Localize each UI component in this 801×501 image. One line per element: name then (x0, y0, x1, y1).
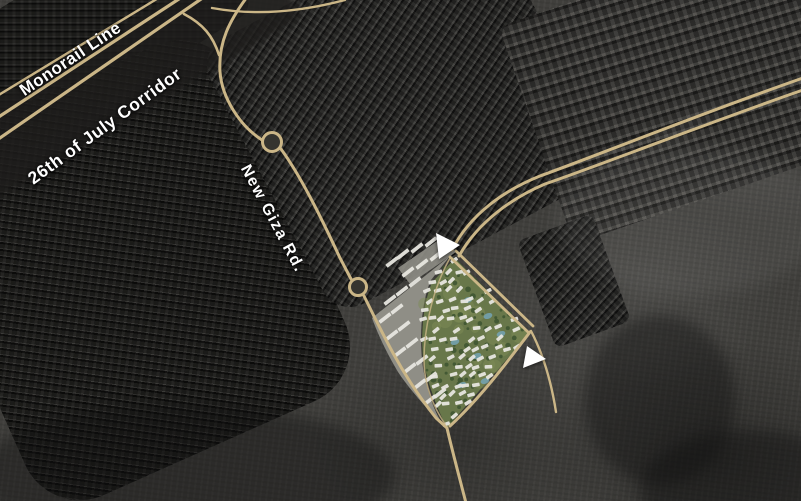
tree (471, 385, 475, 389)
tree (458, 399, 462, 403)
tree (445, 279, 448, 282)
villa-building (467, 336, 475, 344)
road-top-edge-stub (212, 0, 345, 12)
apartment-strip (413, 378, 426, 390)
housing-cluster-topcenter (196, 0, 619, 318)
tree (470, 293, 476, 299)
apartment-strip (415, 354, 428, 366)
villa-building (455, 270, 463, 275)
housing-cluster-left (0, 21, 369, 501)
lawn-patch (495, 342, 509, 356)
tree (502, 315, 505, 318)
apartment-strip (415, 258, 428, 270)
villa-building (452, 327, 460, 334)
tree (477, 371, 481, 375)
tree (442, 266, 445, 269)
lawn-patch (471, 325, 479, 333)
tree (450, 377, 454, 381)
lawn-patch (489, 360, 502, 373)
tree (465, 286, 471, 292)
site-parcel-gray (372, 256, 450, 426)
industrial-cluster-topright (499, 0, 801, 244)
apartment-strip (396, 248, 409, 260)
pond (450, 338, 460, 346)
lawn-patch (473, 357, 482, 366)
tree (458, 377, 463, 382)
lawn-patch (438, 314, 452, 328)
tree (464, 343, 469, 348)
villa-building (454, 383, 462, 389)
apartment-strip (395, 285, 408, 297)
villa-building (488, 354, 496, 360)
tree (452, 314, 456, 318)
pond (463, 296, 473, 304)
tree (453, 362, 456, 365)
apartment-strip (397, 320, 410, 332)
villa-building (484, 326, 492, 333)
tree (450, 411, 455, 416)
villa-building (512, 326, 520, 332)
villa-building (455, 365, 463, 369)
gray-parcel-buildings (378, 236, 446, 406)
apartment-strip (423, 394, 436, 406)
villa-building (448, 389, 456, 397)
villa-building (445, 347, 453, 352)
pond (496, 330, 506, 338)
road-site-inner-boundary (424, 258, 450, 424)
tree (512, 336, 517, 341)
tree (445, 363, 449, 367)
lawn-patch (486, 328, 503, 345)
tree (457, 363, 460, 366)
villa-building (468, 354, 476, 362)
housing-cluster-topleft (0, 0, 255, 151)
villa-building (441, 384, 449, 391)
apartment-strip (378, 312, 391, 324)
tree (495, 343, 499, 347)
corridor-roadbed (0, 0, 301, 200)
tree (471, 308, 476, 313)
villa-building (455, 400, 463, 405)
apartment-strip (390, 303, 403, 315)
lawn-patch (443, 286, 458, 301)
tree (521, 328, 524, 331)
tree (443, 390, 448, 395)
apartment-strip (401, 266, 414, 278)
tree (473, 316, 476, 319)
tree (494, 319, 499, 324)
tree (430, 377, 436, 383)
pond (480, 377, 490, 385)
tree (445, 372, 448, 375)
villa-building (445, 268, 453, 276)
villa-building (431, 347, 439, 352)
villa-building (450, 412, 458, 420)
villa-building (432, 326, 440, 334)
tree (457, 274, 460, 277)
label-monorail-line: Monorail Line (16, 18, 125, 101)
villa-building (425, 298, 433, 305)
villa-building (450, 257, 458, 264)
villa-building (476, 297, 484, 304)
apartment-strip (424, 236, 437, 248)
villa-building (435, 299, 443, 305)
villa-building (447, 316, 455, 321)
tree (464, 377, 468, 381)
lawn-patch (470, 306, 485, 321)
villa-building (449, 372, 457, 377)
villa-building (485, 373, 493, 380)
villa-building (434, 288, 442, 293)
villa-building (431, 383, 439, 389)
apartment-strip (410, 242, 423, 254)
pond (457, 381, 467, 389)
tree (466, 327, 469, 330)
tree (481, 294, 484, 297)
apartment-strip (385, 256, 398, 268)
villa-building (465, 363, 473, 370)
desert-wadi-right (585, 315, 735, 485)
villa-building (442, 401, 450, 405)
tree (428, 340, 432, 344)
villa-building (460, 299, 468, 303)
tree (463, 399, 467, 403)
tree (484, 342, 489, 347)
villa-building (476, 355, 484, 362)
villa-building (466, 296, 474, 302)
road-new-giza (220, 0, 262, 140)
site-parcel-north-gray (398, 237, 456, 284)
villa-building (447, 354, 455, 361)
tree (505, 343, 511, 349)
villa-building (445, 285, 453, 293)
tree (506, 326, 510, 330)
villa-building (450, 336, 458, 341)
villa-building (428, 280, 436, 285)
desert-shadow-bottomright (640, 430, 801, 501)
villa-building (472, 382, 480, 387)
tree (472, 277, 476, 281)
tree (494, 316, 497, 319)
villa-building (474, 306, 482, 313)
villa-building (471, 346, 479, 353)
site-parcel-green (422, 258, 530, 428)
villa-building (510, 316, 518, 322)
road-new-giza-mid (281, 149, 351, 279)
road-ne-dual-2 (459, 90, 801, 256)
villa-building (439, 337, 447, 342)
site-pointer-north-icon (436, 233, 460, 259)
satellite-map: Monorail Line 26th of July Corridor New … (0, 0, 801, 501)
pond (483, 312, 493, 320)
tree (486, 349, 488, 351)
villa-building (468, 370, 476, 378)
site-lawn-highlights (418, 279, 528, 389)
tree (466, 393, 471, 398)
villa-building (428, 355, 436, 363)
tree (444, 287, 447, 290)
villa-building (462, 269, 470, 276)
villa-building (430, 375, 438, 379)
road-site-ne-edge-1 (450, 257, 528, 332)
villa-building (421, 308, 429, 313)
villa-building (464, 399, 472, 406)
tree (483, 326, 489, 332)
tree (452, 258, 456, 262)
villa-building (434, 364, 442, 368)
road-below-tip (447, 428, 466, 501)
site-district (372, 236, 530, 428)
road-26th-july-corridor-sb (0, 0, 204, 140)
tree (466, 357, 469, 360)
lawn-patch (511, 327, 527, 343)
villa-building (484, 288, 492, 295)
tree (458, 312, 464, 318)
roundabout-north (263, 133, 282, 152)
tree (456, 381, 461, 386)
site-pointer-east-icon (523, 346, 546, 368)
villa-building (480, 343, 488, 349)
apartment-strip (403, 362, 416, 374)
lawn-patch (452, 306, 468, 322)
villa-building (442, 421, 450, 427)
villa-building (434, 269, 442, 275)
tree (481, 313, 484, 316)
lawn-patch (450, 279, 460, 289)
villa-building (434, 400, 442, 408)
apartment-strip (433, 387, 446, 399)
villa-building (465, 317, 473, 324)
tree (453, 281, 458, 286)
road-network (0, 0, 801, 501)
villa-building (513, 343, 521, 350)
villa-building (503, 347, 511, 353)
desert-ridge-right (555, 145, 801, 295)
villa-building (488, 298, 496, 305)
villa-building (494, 323, 502, 329)
road-ne-dual-1 (452, 78, 801, 250)
villa-building (496, 334, 504, 342)
apartment-strip (424, 371, 437, 383)
site-trees (426, 258, 524, 424)
apartment-strip (429, 250, 442, 262)
tree (451, 348, 457, 354)
pond (472, 352, 482, 360)
villa-building (463, 346, 471, 353)
villa-building (471, 365, 479, 371)
road-corridor-ramp (184, 14, 219, 55)
tree (437, 295, 441, 299)
villa-building (436, 315, 444, 323)
tree (457, 405, 461, 409)
villa-building (419, 316, 427, 322)
tree (450, 418, 455, 423)
road-past-east-vertex (531, 331, 556, 412)
tree (426, 369, 429, 372)
tree (457, 287, 461, 291)
road-26th-july-corridor-nb (0, 0, 182, 118)
site-ponds (450, 296, 506, 389)
apartment-strip (405, 337, 418, 349)
villa-building (458, 352, 466, 360)
lawn-patch (454, 324, 464, 334)
tree (431, 371, 436, 376)
tree (435, 391, 440, 396)
villa-building (428, 336, 436, 341)
villa-building (423, 287, 431, 293)
lawn-patch (432, 321, 441, 330)
villa-building (473, 326, 481, 330)
villa-building (495, 344, 503, 350)
housing-grid-east-of-site (517, 214, 631, 348)
label-26th-of-july-corridor: 26th of July Corridor (24, 63, 186, 189)
villa-building (420, 336, 428, 342)
villa-building (463, 305, 471, 311)
tree (445, 272, 450, 277)
desert-shadow-bottomleft (0, 405, 395, 501)
tree (440, 399, 443, 402)
villa-building (451, 306, 459, 311)
apartment-strip (408, 276, 421, 288)
apartment-strip (383, 294, 396, 306)
villa-building (428, 315, 436, 320)
vignette-overlay (0, 0, 801, 501)
villa-building (442, 308, 450, 314)
tree (474, 340, 479, 345)
tree (486, 356, 491, 361)
tree (500, 309, 503, 312)
villa-building (458, 390, 466, 397)
road-new-giza-south (364, 296, 447, 428)
lawn-patch (483, 358, 495, 370)
villa-building (461, 383, 469, 388)
map-overlay (0, 0, 801, 501)
tree (459, 349, 464, 354)
villa-building (448, 296, 456, 302)
villa-building (439, 279, 447, 286)
tree (438, 379, 442, 383)
villa-building (478, 372, 486, 378)
tree (499, 355, 503, 359)
apartment-strip (393, 346, 406, 358)
tree (429, 361, 433, 365)
road-site-se-edge (450, 332, 530, 426)
tree (464, 385, 467, 388)
lawn-patch (457, 299, 474, 316)
apartment-strip (385, 329, 398, 341)
villa-building (459, 370, 467, 378)
tree (487, 292, 490, 295)
villa-building (455, 285, 463, 293)
tree (453, 344, 456, 347)
label-new-giza-rd: New Giza Rd. (236, 162, 308, 276)
lawn-patch (472, 372, 489, 389)
tree (471, 375, 475, 379)
lawn-patch (452, 309, 466, 323)
tree (478, 321, 483, 326)
villa-building (447, 277, 455, 285)
tree (507, 311, 512, 316)
tree (472, 355, 478, 361)
villa-building (477, 335, 485, 342)
site-buildings (419, 257, 521, 428)
road-site-ne-edge-2 (456, 251, 533, 326)
villa-building (467, 392, 475, 397)
villa-building (459, 315, 467, 321)
villa-building (439, 393, 447, 401)
roundabout-south (350, 279, 367, 296)
road-monorail-line (0, 0, 160, 96)
lawn-patch (418, 298, 431, 311)
villa-building (485, 365, 493, 369)
tree (445, 341, 448, 344)
site-pointer-icons (436, 233, 546, 368)
tree (464, 322, 467, 325)
